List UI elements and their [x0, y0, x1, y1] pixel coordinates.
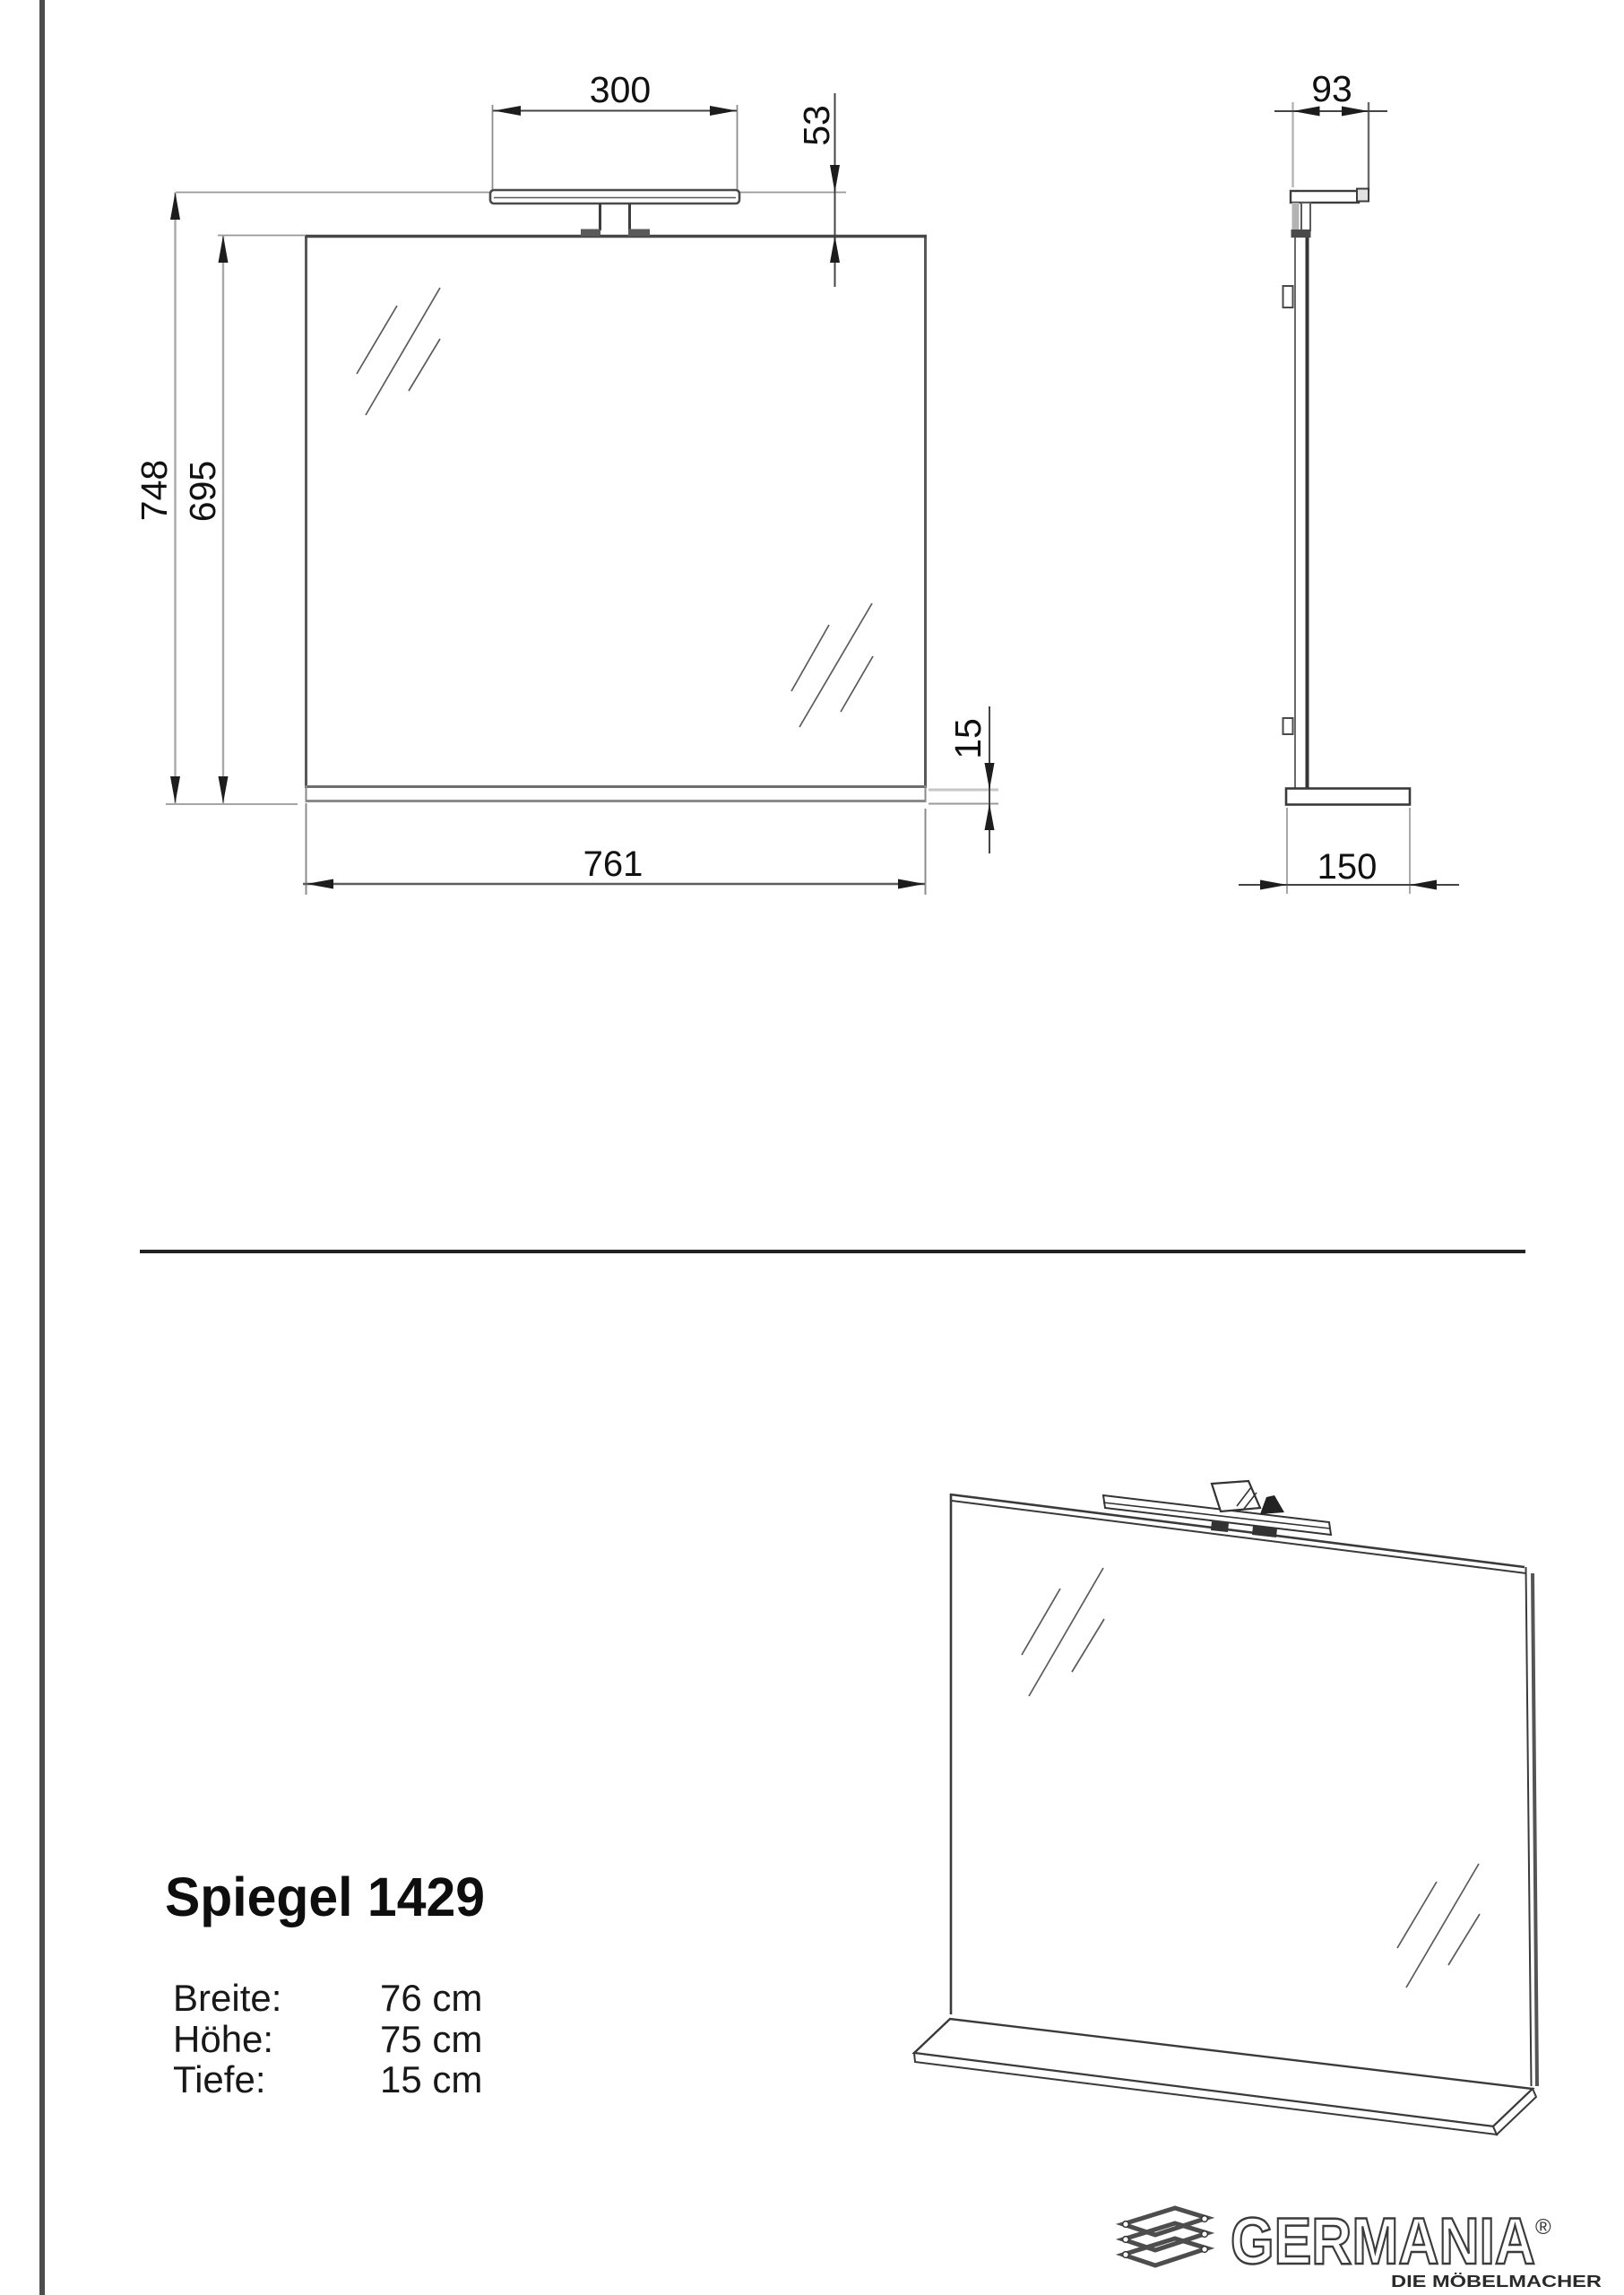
svg-text:DIE MÖBELMACHER: DIE MÖBELMACHER — [1391, 2273, 1602, 2291]
svg-text:76 cm: 76 cm — [380, 1977, 482, 2019]
svg-text:15 cm: 15 cm — [380, 2058, 482, 2100]
svg-text:Tiefe:: Tiefe: — [173, 2058, 265, 2100]
svg-text:Höhe:: Höhe: — [173, 2018, 273, 2060]
svg-text:300: 300 — [590, 69, 651, 110]
svg-text:Breite:: Breite: — [173, 1977, 281, 2019]
svg-text:93: 93 — [1311, 68, 1352, 109]
svg-text:695: 695 — [182, 461, 223, 522]
svg-text:75 cm: 75 cm — [380, 2018, 482, 2060]
svg-text:53: 53 — [796, 105, 837, 146]
svg-text:Spiegel 1429: Spiegel 1429 — [165, 1866, 485, 1927]
svg-text:761: 761 — [583, 844, 644, 884]
svg-text:GERMANIA: GERMANIA — [1231, 2205, 1535, 2278]
svg-text:®: ® — [1535, 2215, 1551, 2239]
svg-text:748: 748 — [134, 460, 175, 521]
svg-text:150: 150 — [1317, 847, 1378, 887]
svg-text:15: 15 — [947, 718, 989, 759]
